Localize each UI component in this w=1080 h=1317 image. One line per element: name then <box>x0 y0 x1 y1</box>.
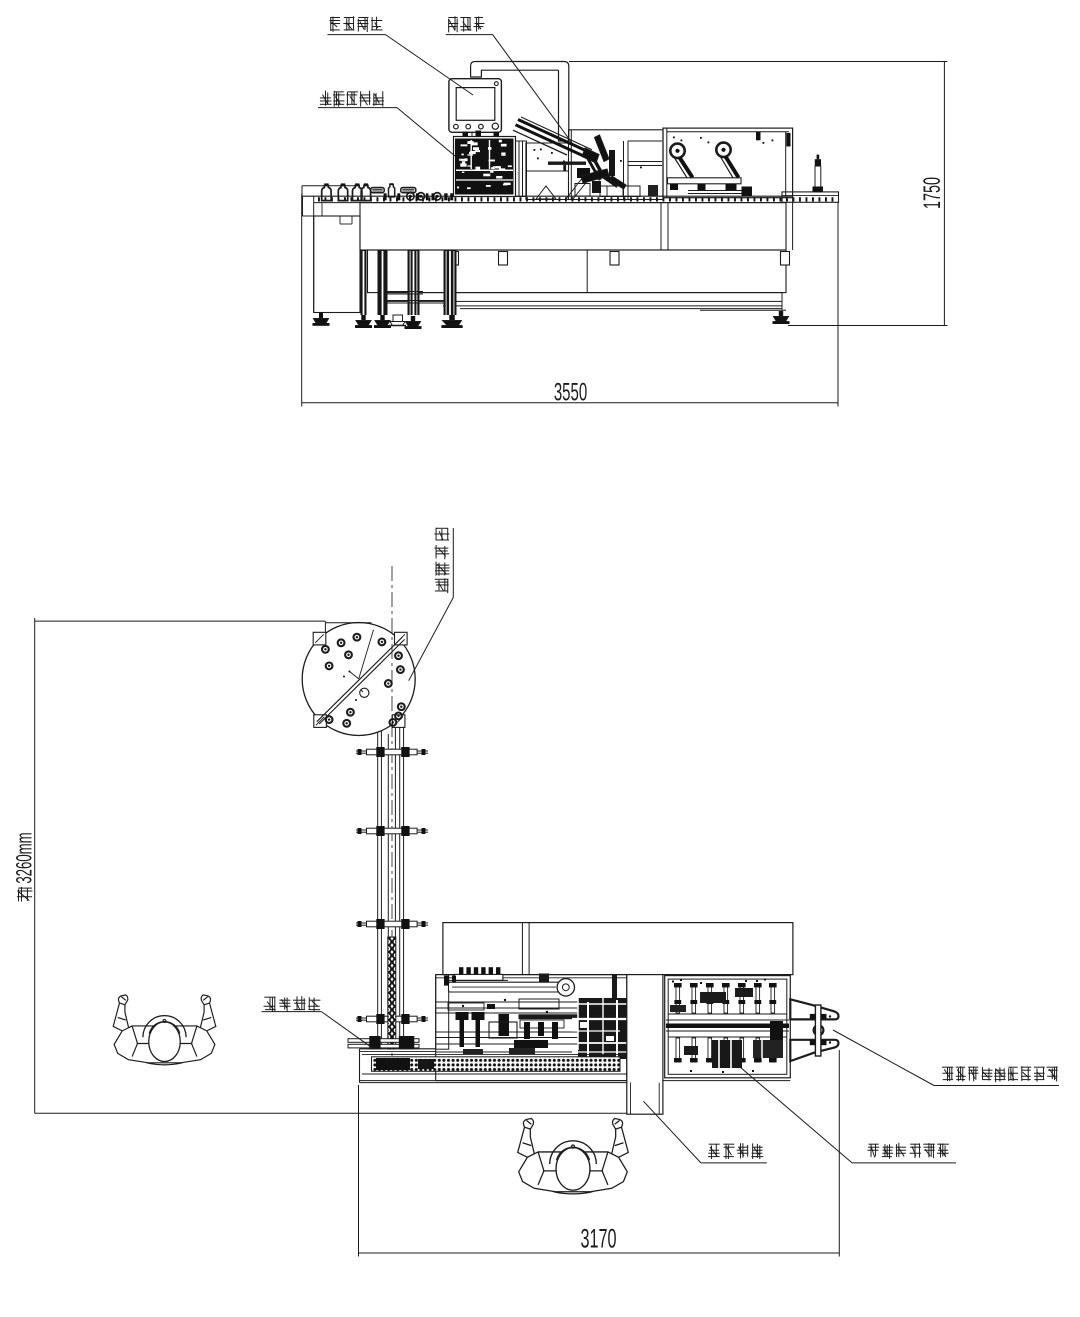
svg-text:3260mm: 3260mm <box>12 832 36 883</box>
svg-text:1750: 1750 <box>919 177 946 209</box>
svg-text:3170: 3170 <box>580 1223 616 1253</box>
svg-text:3550: 3550 <box>554 379 587 407</box>
